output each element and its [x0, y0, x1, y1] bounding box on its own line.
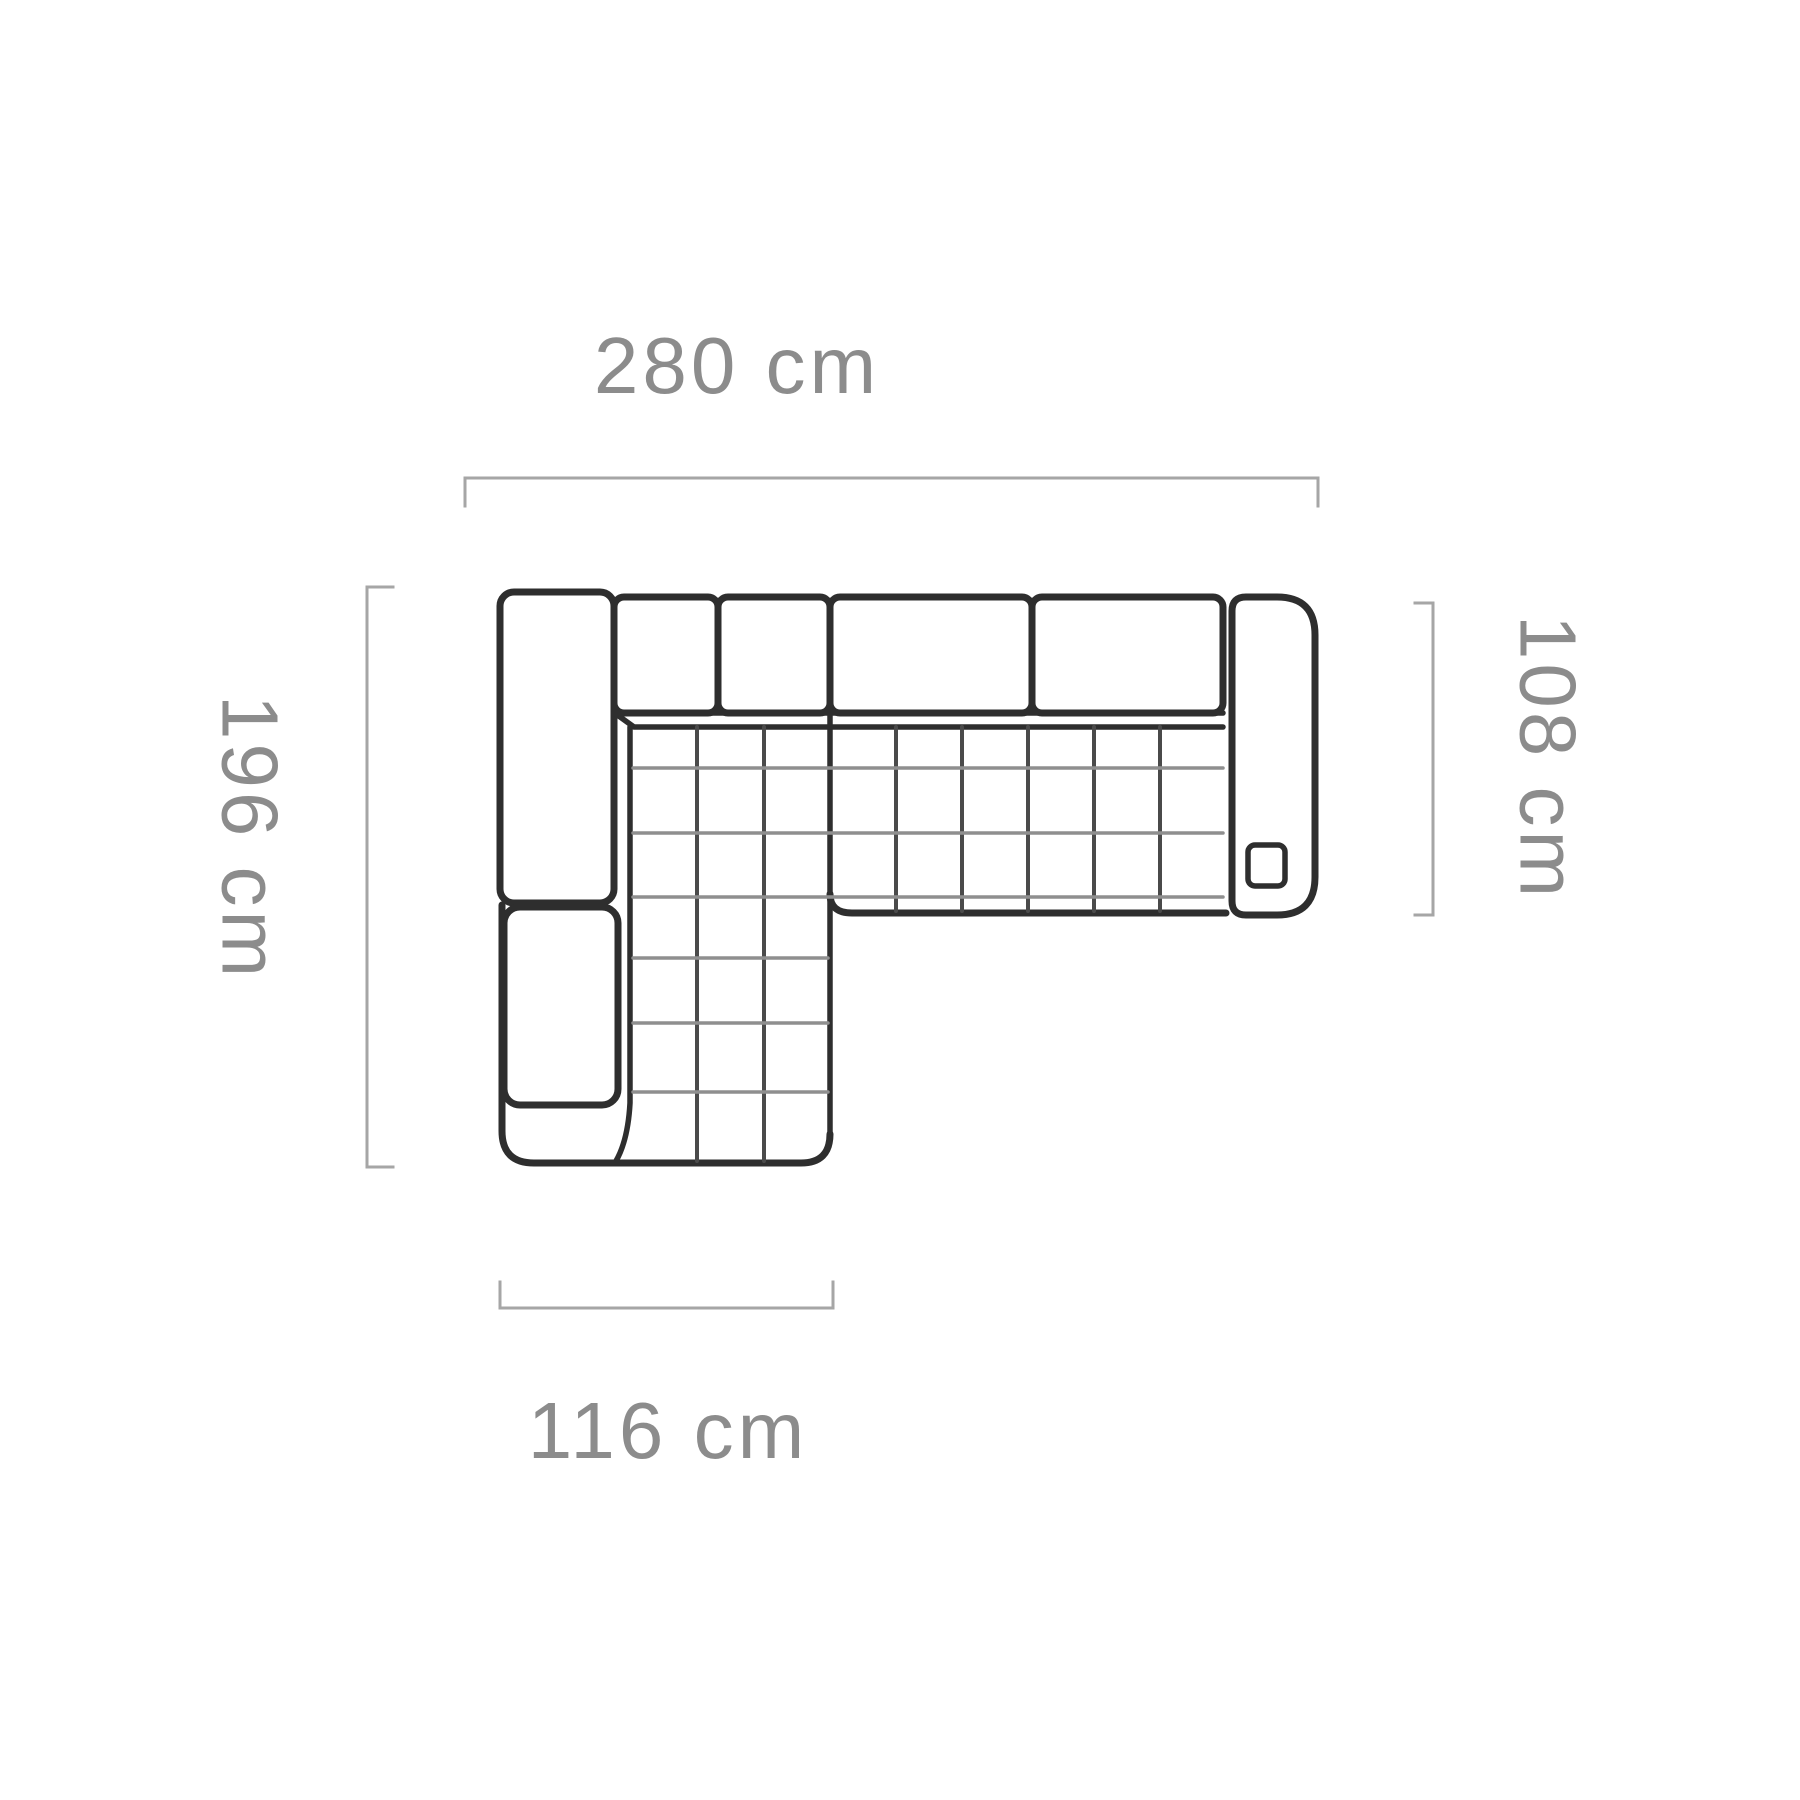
diagram-canvas: 280 cm 196 cm 108 cm 116 cm [0, 0, 1800, 1800]
right-armrest [1232, 597, 1315, 915]
dimension-bottom: 116 cm [500, 1282, 833, 1475]
quilt-grid-vertical-seat [896, 727, 1160, 911]
dimension-left: 196 cm [206, 587, 394, 1167]
backrest-front-edge [614, 713, 1223, 727]
dimension-line-bottom [500, 1282, 833, 1308]
dimension-label-top-width: 280 cm [594, 321, 880, 410]
sofa-outline [500, 592, 1315, 1163]
quilt-grid-horizontal-seat [633, 768, 1223, 897]
right-armrest-detail-square [1248, 845, 1285, 886]
dimension-line-top [465, 478, 1318, 506]
dimension-label-right-depth: 108 cm [1504, 615, 1593, 901]
dimension-line-left [367, 587, 393, 1167]
backrest-cushion-3 [830, 597, 1032, 713]
chaise-outer-edge [502, 905, 830, 1163]
backrest-cushion-4 [1032, 597, 1223, 713]
dimension-right: 108 cm [1415, 603, 1593, 915]
backrest-cushion-1 [614, 597, 718, 713]
backrest-cushions [614, 597, 1223, 713]
dimension-label-chaise-width: 116 cm [528, 1386, 808, 1475]
left-side-cushion [504, 907, 618, 1105]
dimension-top: 280 cm [465, 321, 1318, 506]
backrest-cushion-2 [718, 597, 830, 713]
sofa-dimension-diagram: 280 cm 196 cm 108 cm 116 cm [0, 0, 1800, 1800]
left-armrest [500, 592, 614, 903]
dimension-label-left-depth: 196 cm [206, 695, 295, 981]
dimension-line-right [1415, 603, 1433, 915]
quilt-grid-horizontal-chaise [633, 958, 828, 1092]
quilt-grid-vertical-chaise [697, 727, 764, 1161]
